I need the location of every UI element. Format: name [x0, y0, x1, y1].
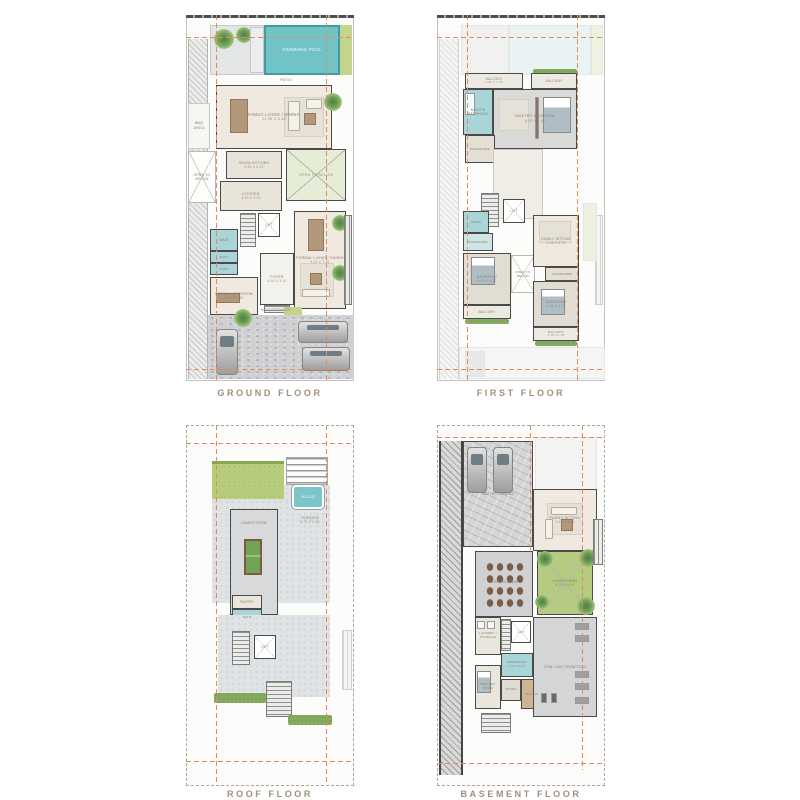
kitchen: KITCHEN3.00 X 5.20: [220, 181, 282, 211]
sofa: [545, 519, 553, 539]
stairs: [501, 619, 511, 651]
foyer: FOYER4.35 X 3.10: [260, 253, 294, 305]
green-below: [583, 203, 597, 261]
open-to-below: OPEN TO BELOW: [188, 151, 216, 203]
deck-below: [461, 25, 509, 75]
lift: LIFT: [503, 199, 525, 223]
first-floor-plan: BALCONY4.60 X 1.40BALCONYMASTER BATHROOM…: [437, 15, 605, 381]
setback-line: [530, 425, 531, 551]
balcony: BALCONY: [531, 73, 577, 89]
windshield: [471, 454, 483, 465]
bbq-area: BBQ AREA: [188, 103, 210, 149]
sofa: [551, 507, 577, 515]
first-floor-title: FIRST FLOOR: [437, 388, 605, 398]
windshield: [220, 336, 234, 347]
bed: [543, 97, 571, 133]
setback-line: [186, 37, 354, 38]
terrace-label: TERRACE5.70 X 4.35: [290, 515, 330, 525]
setback-line: [577, 15, 578, 381]
green-roof: [212, 461, 284, 499]
stairs: [481, 713, 511, 733]
setback-line: [437, 437, 605, 438]
setback-line: [437, 369, 605, 370]
sun-loungers: [250, 27, 264, 73]
planter: [535, 341, 577, 346]
setback-line: [326, 15, 327, 381]
roof-floor-plan: JACUZZITERRACE5.70 X 4.35GAMES ROOMSNOOK…: [186, 425, 354, 786]
tree: [535, 595, 549, 609]
ground-floor-title: GROUND FLOOR: [186, 388, 354, 398]
snooker-table: SNOOKER: [244, 539, 262, 575]
roof-floor-title: ROOF FLOOR: [186, 789, 354, 799]
side-path: [439, 39, 459, 379]
windshield: [307, 325, 340, 330]
setback-line: [326, 425, 327, 786]
tv-wall: [535, 97, 539, 139]
show-kitchen: SHOW KITCHEN2.60 X 5.20: [226, 151, 282, 179]
weights-rack: [541, 693, 547, 703]
lift: LIFT: [511, 621, 531, 643]
lift: LIFT: [254, 635, 276, 659]
wardrobe: WARDROBE: [465, 135, 495, 163]
home-cinema-label: HOME CINEMA: [485, 577, 523, 587]
setback-line: [216, 15, 217, 381]
sitting-rug: [499, 99, 529, 131]
coffee-table: [561, 519, 573, 531]
side-path: [188, 39, 208, 379]
car: [493, 447, 513, 493]
main-entrance-label: MAIN ENTRANCE: [256, 307, 296, 314]
side-steps: [344, 215, 352, 305]
pantry: PANTRY: [232, 595, 262, 609]
side-steps-below: [342, 630, 352, 690]
bed: [471, 257, 495, 285]
maids-bath: BATH: [210, 251, 238, 263]
tree: [577, 597, 595, 615]
tree: [537, 551, 553, 567]
patio-label: PATIO: [266, 76, 306, 84]
planter: [214, 693, 266, 703]
washer: [477, 621, 485, 629]
setback-line: [186, 443, 354, 444]
weights-rack: [551, 693, 557, 703]
ramp: [439, 441, 463, 775]
basement-floor-plan: MOTOR PARKINGFAMILY SITTING7.40 X 5.55HO…: [437, 425, 605, 786]
setback-line: [216, 425, 217, 786]
tree: [234, 309, 252, 327]
desk: [216, 293, 240, 303]
store: STORE: [501, 679, 521, 701]
sofa: [288, 101, 300, 131]
open-to-below-courtyard: OPEN TO BELOW: [286, 149, 346, 201]
dining-table: [308, 219, 324, 251]
balcony: BALCONY4.60 X 1.40: [465, 73, 523, 89]
windshield: [497, 454, 509, 465]
balcony: BALCONY4.75 X 1.35: [533, 327, 579, 341]
setback-line: [186, 369, 354, 370]
floor-plans-sheet: SWIMMING POOLPATIOFAMILY LIVING / DINING…: [0, 0, 800, 800]
coffee-table: [304, 113, 316, 125]
washer: [487, 621, 495, 629]
stairs: [240, 213, 256, 247]
lift: LIFT: [258, 213, 280, 237]
jacuzzi: JACUZZI: [292, 485, 324, 509]
bed: [541, 289, 565, 315]
dining-table: [230, 99, 248, 133]
pergola: [286, 457, 328, 485]
green-below: [591, 25, 603, 75]
maids-room: MAID: [210, 229, 238, 251]
stairs: [232, 631, 250, 665]
powder-room: PWD: [210, 263, 238, 275]
terrace-steps: [266, 681, 292, 717]
washroom: WASHROOM2.10 X 2.40: [501, 653, 533, 677]
setback-line: [582, 425, 583, 770]
car: [467, 447, 487, 493]
pool-below: [509, 25, 591, 75]
coffee-table: [310, 273, 322, 285]
ground-floor-plan: SWIMMING POOLPATIOFAMILY LIVING / DINING…: [186, 15, 354, 381]
side-stairs: [593, 519, 603, 565]
basement-floor-title: BASEMENT FLOOR: [437, 789, 605, 799]
setback-line: [186, 761, 354, 762]
green-strip: [340, 25, 352, 75]
planter: [465, 319, 509, 324]
car: [298, 321, 348, 343]
boundary-wall: [186, 15, 354, 18]
open-to-below: OPEN TO BELOW: [511, 255, 535, 293]
setback-line: [437, 763, 605, 764]
floor-above-outline: [535, 437, 597, 493]
setback-line: [467, 15, 468, 381]
balcony: BALCONY: [463, 305, 511, 319]
wardrobe: WARDROBE: [545, 267, 579, 281]
sitting-rug: [539, 221, 571, 243]
games-room-label: GAMES ROOM: [234, 519, 274, 527]
swimming-pool: SWIMMING POOL: [264, 25, 340, 75]
setback-line: [437, 37, 605, 38]
bed: [477, 671, 491, 693]
boundary-wall: [437, 15, 605, 18]
sofa: [306, 99, 322, 109]
